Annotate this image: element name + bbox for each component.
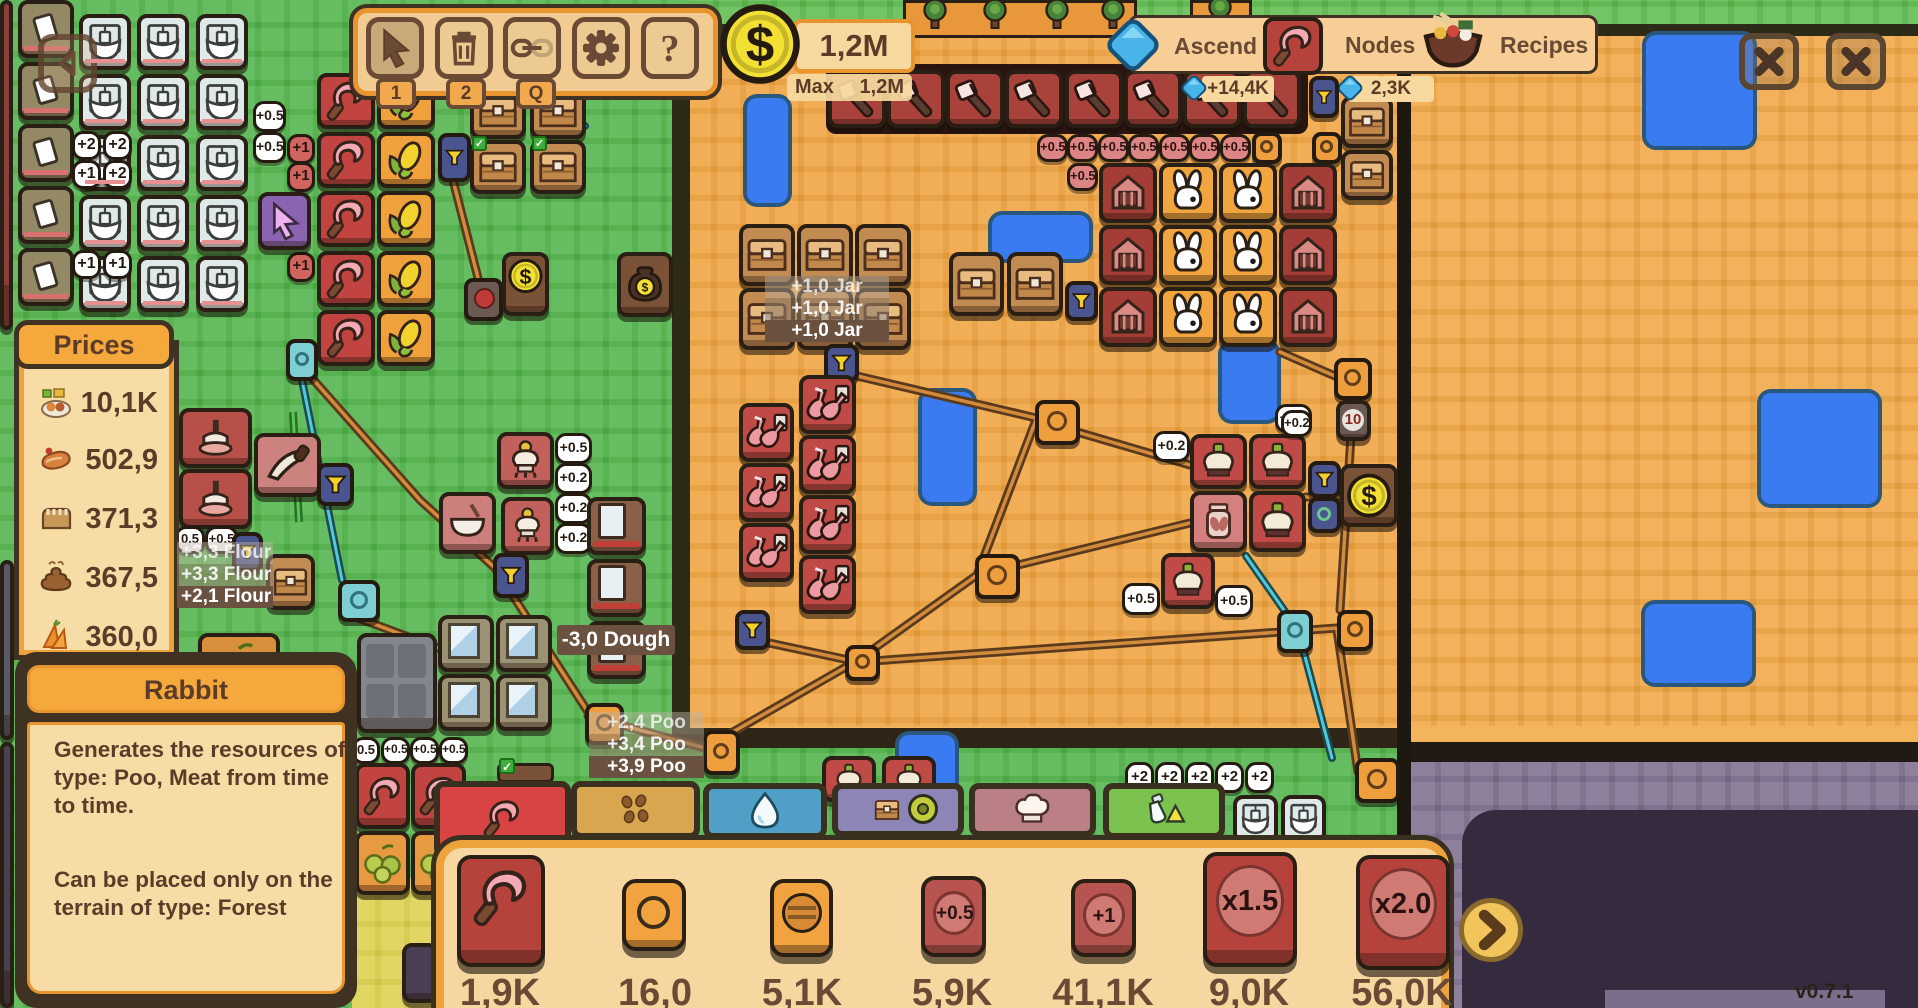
svg-text:$: $ <box>746 15 775 72</box>
